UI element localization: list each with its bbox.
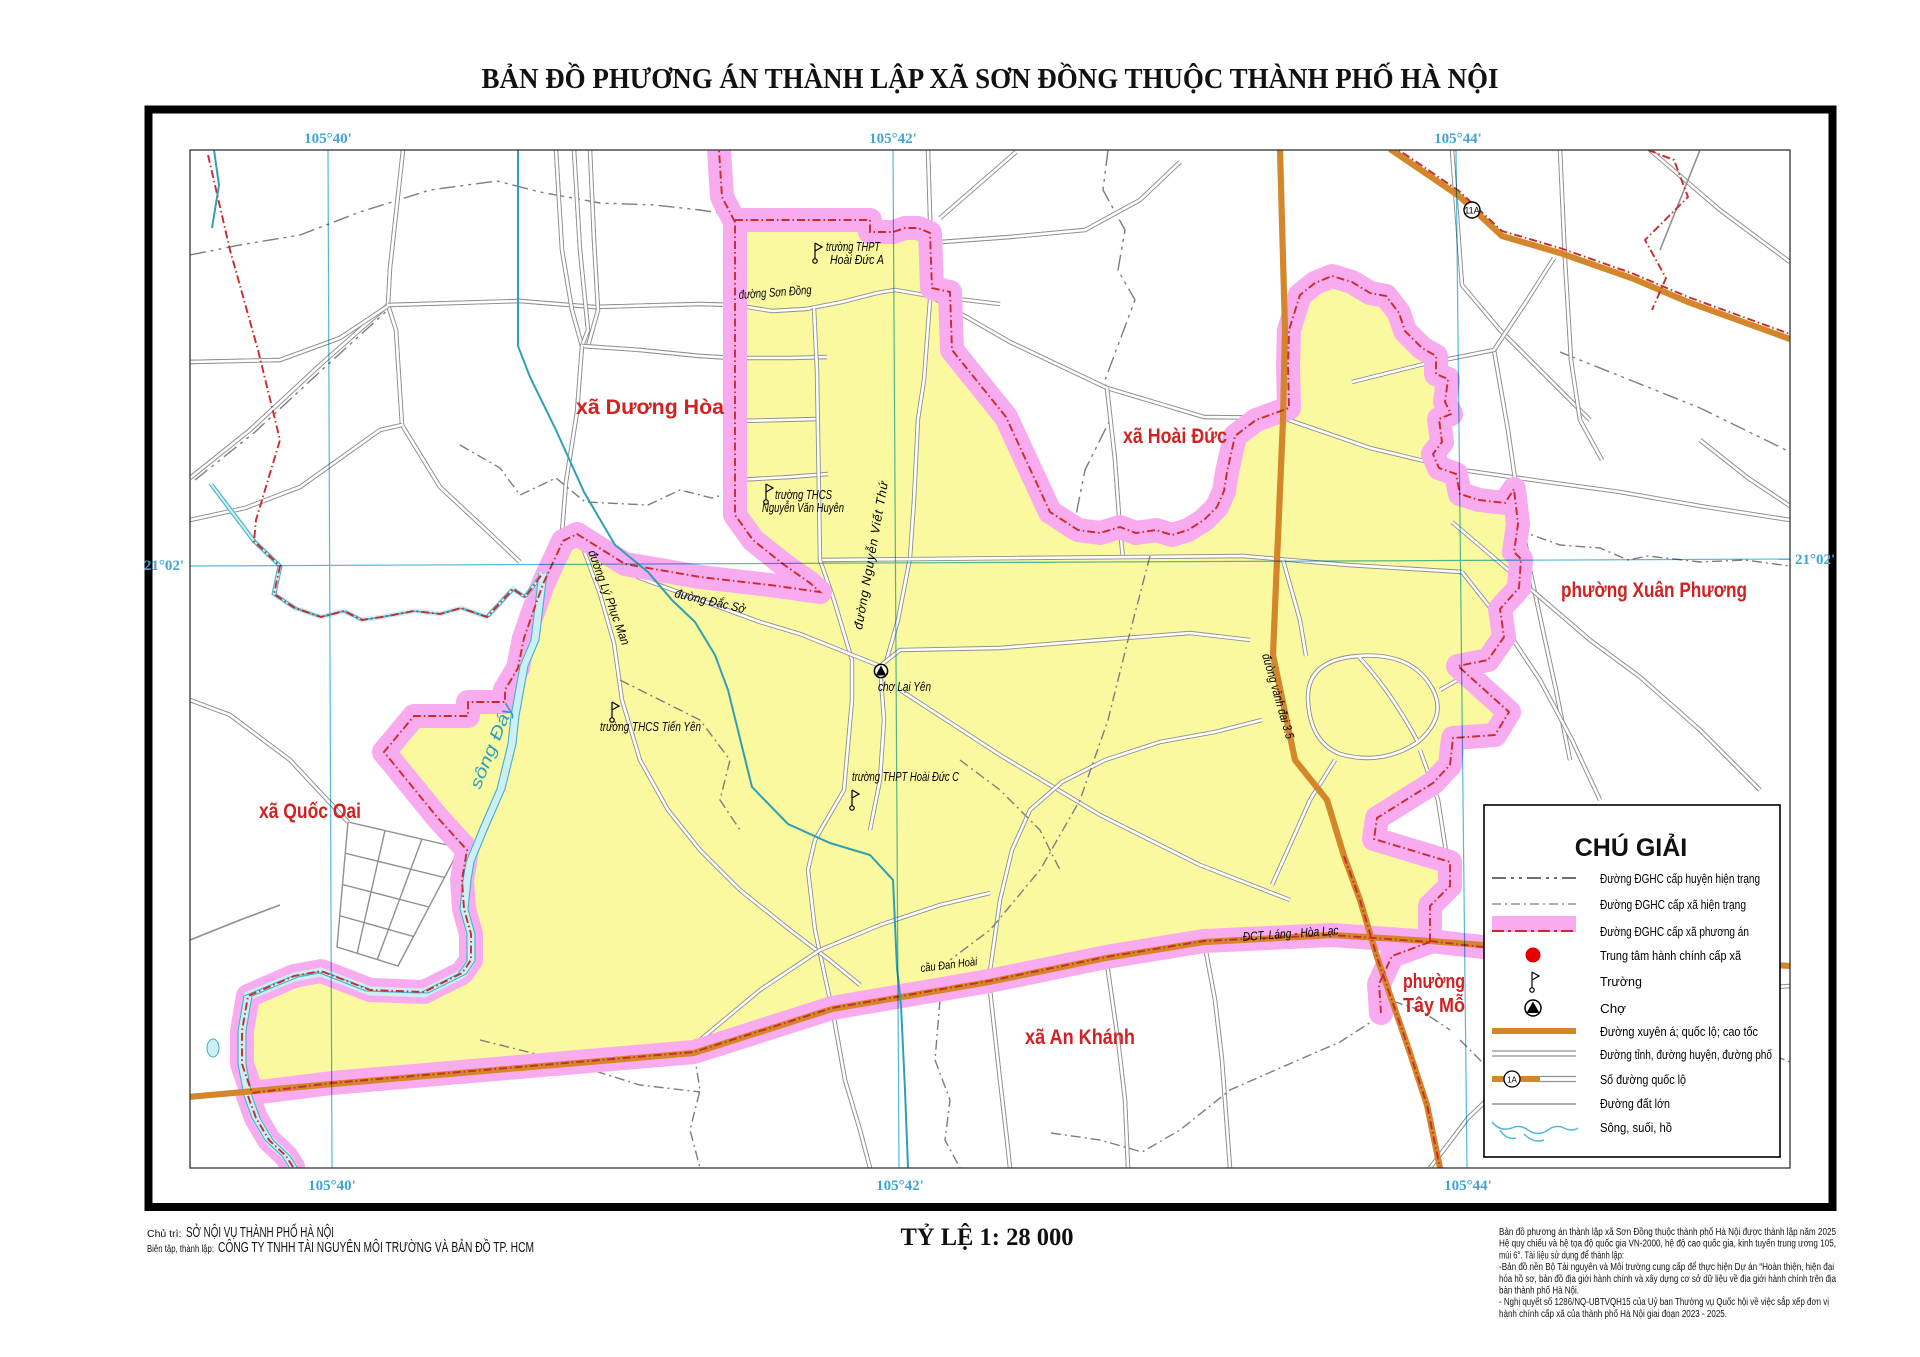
svg-text:phường Xuân Phương: phường Xuân Phương xyxy=(1561,579,1747,602)
svg-text:-Bản đồ nền Bộ Tài nguyên và M: -Bản đồ nền Bộ Tài nguyên và Môi trường … xyxy=(1499,1262,1834,1273)
svg-text:21°02': 21°02' xyxy=(144,558,184,574)
svg-text:Nguyễn Văn Huyên: Nguyễn Văn Huyên xyxy=(762,500,844,515)
svg-text:Hệ quy chiếu và hệ tọa độ quốc: Hệ quy chiếu và hệ tọa độ quốc gia VN-20… xyxy=(1499,1239,1836,1250)
svg-text:Đường ĐGHC cấp xã hiện trạng: Đường ĐGHC cấp xã hiện trạng xyxy=(1600,897,1746,912)
svg-text:hành chính cấp xã của thành ph: hành chính cấp xã của thành phố Hà Nội g… xyxy=(1499,1309,1727,1320)
svg-text:Đường ĐGHC cấp xã phương án: Đường ĐGHC cấp xã phương án xyxy=(1600,924,1749,939)
svg-text:múi 6°. Tài liệu sử dụng để th: múi 6°. Tài liệu sử dụng để thành lập: xyxy=(1499,1250,1624,1261)
svg-text:TỶ LỆ 1: 28 000: TỶ LỆ 1: 28 000 xyxy=(901,1223,1074,1251)
svg-text:trường THCS Tiến Yên: trường THCS Tiến Yên xyxy=(600,720,701,734)
svg-text:105°40': 105°40' xyxy=(308,1178,356,1194)
svg-text:Trung tâm hành chính cấp xã: Trung tâm hành chính cấp xã xyxy=(1600,948,1742,963)
svg-text:CÔNG TY TNHH TÀI NGUYÊN MÔI TR: CÔNG TY TNHH TÀI NGUYÊN MÔI TRƯỜNG VÀ BẢ… xyxy=(218,1238,534,1256)
svg-text:105°40': 105°40' xyxy=(304,131,352,147)
svg-text:Trường: Trường xyxy=(1600,974,1642,989)
svg-text:trường THCS: trường THCS xyxy=(775,488,832,502)
svg-text:Số đường quốc lộ: Số đường quốc lộ xyxy=(1600,1072,1686,1087)
svg-text:BẢN ĐỒ PHƯƠNG ÁN THÀNH LẬP XÃ: BẢN ĐỒ PHƯƠNG ÁN THÀNH LẬP XÃ SƠN ĐỒNG T… xyxy=(482,63,1499,95)
svg-text:phường: phường xyxy=(1403,971,1465,993)
svg-text:105°44': 105°44' xyxy=(1434,131,1482,147)
svg-text:Biên tập, thành lập:: Biên tập, thành lập: xyxy=(147,1243,214,1255)
svg-text:Bản đồ phương án thành lập xã: Bản đồ phương án thành lập xã Sơn Đồng t… xyxy=(1499,1227,1836,1238)
svg-text:Chợ: Chợ xyxy=(1600,1001,1626,1016)
svg-text:1A: 1A xyxy=(1507,1076,1517,1085)
svg-text:trường THPT: trường THPT xyxy=(826,240,881,254)
svg-text:chợ Lại Yên: chợ Lại Yên xyxy=(878,680,931,694)
svg-text:Sông, suối, hồ: Sông, suối, hồ xyxy=(1600,1120,1672,1135)
svg-text:Đường đất lớn: Đường đất lớn xyxy=(1600,1096,1670,1111)
svg-text:Đường xuyên á; quốc lộ; cao tố: Đường xuyên á; quốc lộ; cao tốc xyxy=(1600,1024,1758,1039)
svg-text:xã Dương Hòa: xã Dương Hòa xyxy=(576,396,724,419)
svg-text:- Nghị quyết số 1286/NQ-UBTVQH: - Nghị quyết số 1286/NQ-UBTVQH15 của Uỷ … xyxy=(1499,1297,1829,1308)
svg-text:hóa hồ sơ, bản đồ địa giới hàn: hóa hồ sơ, bản đồ địa giới hành chính và… xyxy=(1499,1274,1836,1285)
svg-text:xã An Khánh: xã An Khánh xyxy=(1025,1026,1135,1049)
svg-text:Đường ĐGHC cấp huyện hiện trạn: Đường ĐGHC cấp huyện hiện trạng xyxy=(1600,871,1760,886)
svg-text:trường THPT Hoài Đức C: trường THPT Hoài Đức C xyxy=(852,770,960,784)
svg-text:Tây Mỗ: Tây Mỗ xyxy=(1403,993,1465,1017)
svg-text:21°02': 21°02' xyxy=(1795,552,1835,568)
svg-text:105°44': 105°44' xyxy=(1444,1178,1492,1194)
svg-text:Chủ trì:: Chủ trì: xyxy=(147,1228,181,1240)
svg-text:bàn thành phố Hà Nội.: bàn thành phố Hà Nội. xyxy=(1499,1286,1579,1297)
svg-text:105°42': 105°42' xyxy=(876,1178,924,1194)
svg-text:11A: 11A xyxy=(1464,206,1479,216)
svg-text:CHÚ GIẢI: CHÚ GIẢI xyxy=(1575,832,1688,862)
svg-text:xã Hoài Đức: xã Hoài Đức xyxy=(1123,425,1227,448)
svg-text:Hoài Đức A: Hoài Đức A xyxy=(830,253,884,267)
svg-text:105°42': 105°42' xyxy=(869,131,917,147)
svg-text:Đường tỉnh, đường huyện, đường: Đường tỉnh, đường huyện, đường phố xyxy=(1600,1047,1772,1062)
svg-text:xã Quốc Oai: xã Quốc Oai xyxy=(259,800,361,823)
